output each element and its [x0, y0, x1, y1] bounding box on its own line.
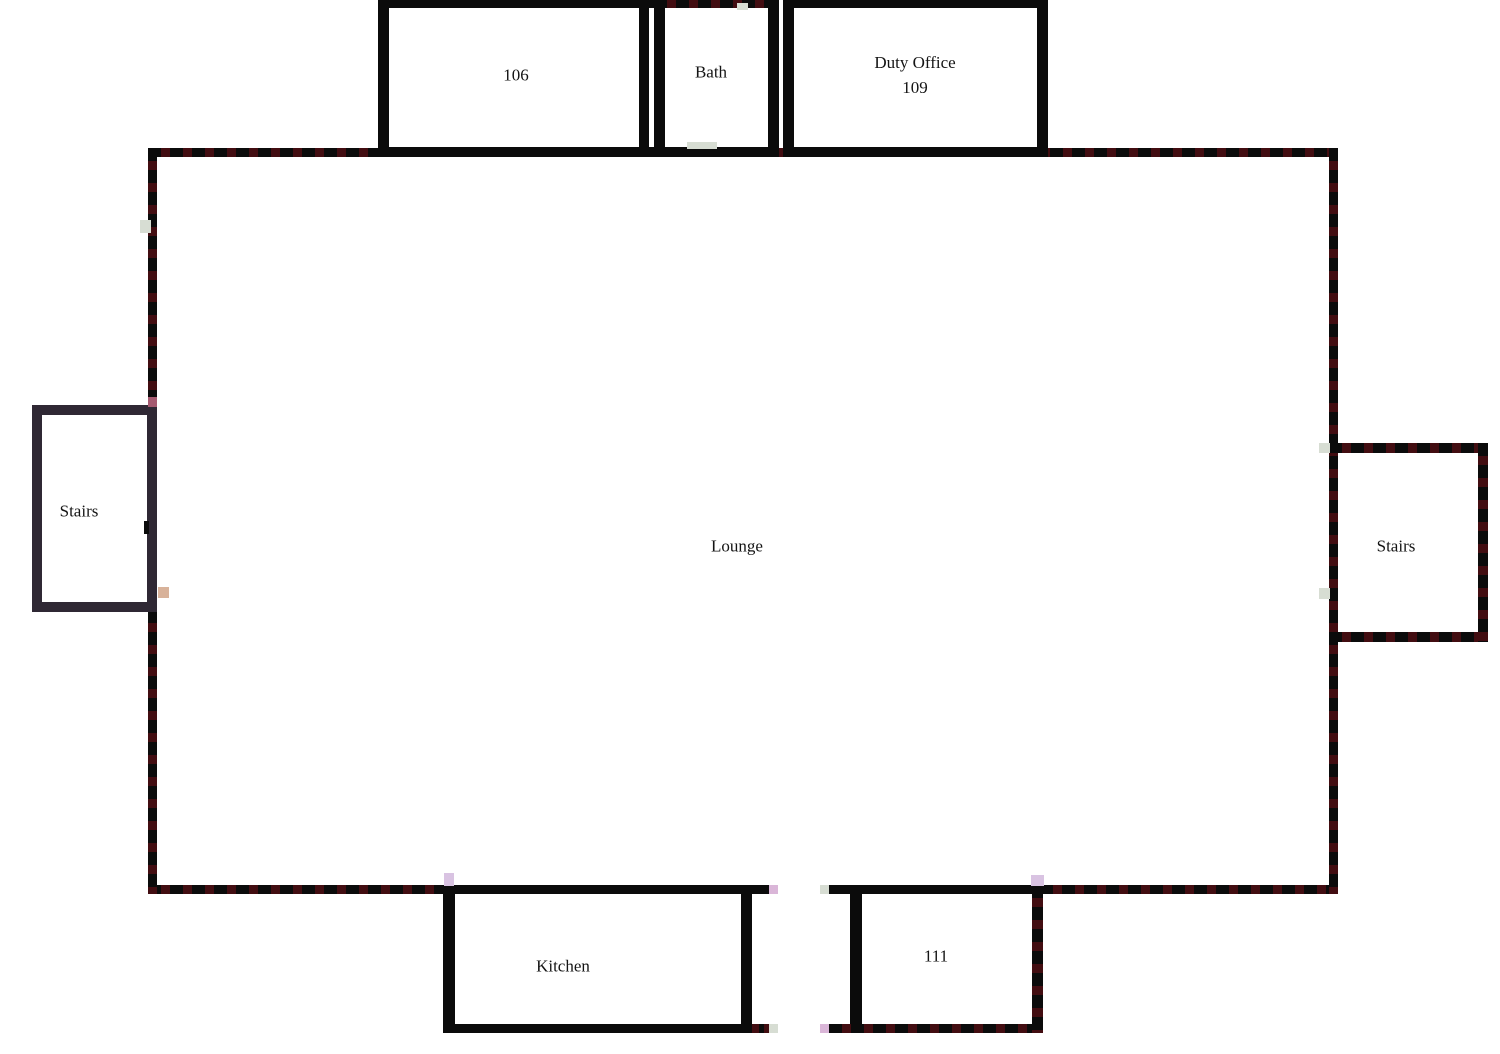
room-label-stairs-left: Stairs	[60, 499, 99, 524]
door-marker-111-top-right	[1031, 875, 1044, 886]
door-marker-stairs-right-top	[1319, 443, 1330, 453]
wall-stairs-right-top	[1329, 443, 1488, 453]
wall-kitchen-left	[443, 885, 455, 1033]
wall-106-bottom	[378, 147, 655, 157]
room-label-duty-office: Duty Office 109	[874, 50, 955, 100]
wall-stairs-left-right	[147, 405, 157, 612]
room-label-lounge: Lounge	[711, 534, 763, 559]
door-marker-stairs-right-bottom	[1319, 588, 1330, 599]
room-label-duty-office-name: Duty Office	[874, 50, 955, 75]
door-marker-stairs-left-bottom	[158, 587, 169, 598]
wall-kitchen-top	[443, 885, 769, 894]
wall-stairs-left-top	[32, 405, 157, 415]
wall-duty-office-top	[783, 0, 1048, 8]
wall-lounge-right	[1329, 148, 1338, 894]
room-label-stairs-right: Stairs	[1377, 534, 1416, 559]
wall-kitchen-bottom	[443, 1024, 752, 1033]
wall-kitchen-right	[741, 885, 752, 1033]
wall-111-right	[1032, 885, 1043, 1033]
wall-bath-left	[654, 0, 665, 157]
wall-106-left	[378, 0, 389, 157]
wall-stairs-right-right	[1478, 443, 1488, 642]
wall-duty-office-right	[1037, 0, 1048, 157]
wall-stairs-left-bottom	[32, 602, 157, 612]
wall-111-bottom	[829, 1024, 1043, 1033]
wall-bath-top	[654, 0, 779, 8]
floor-plan: Lounge 106 Bath Duty Office 109	[0, 0, 1500, 1054]
wall-duty-office-left	[783, 0, 794, 157]
wall-106-top	[378, 0, 655, 8]
door-marker-kitchen-bottom-right	[769, 1024, 778, 1033]
wall-kitchen-bottom-extension	[752, 1024, 769, 1033]
wall-111-left	[850, 885, 862, 1033]
room-label-bath: Bath	[695, 60, 727, 85]
wall-bath-right	[768, 0, 779, 157]
door-marker-kitchen-top-left	[444, 873, 454, 886]
door-marker-kitchen-top-right	[769, 885, 778, 894]
door-marker-bath-bottom	[687, 142, 717, 149]
wall-106-right	[639, 0, 649, 157]
door-marker-lounge-left-wall	[140, 220, 151, 233]
wall-stairs-left-left	[32, 405, 42, 612]
wall-stairs-right-bottom	[1329, 632, 1488, 642]
room-label-106: 106	[503, 63, 529, 88]
door-marker-bath-top	[737, 3, 748, 10]
wall-duty-office-bottom	[783, 147, 1048, 157]
room-label-111: 111	[924, 944, 948, 969]
room-label-duty-office-number: 109	[874, 75, 955, 100]
door-marker-stairs-left-top	[148, 397, 157, 407]
door-marker-111-top-left	[820, 885, 829, 894]
door-tick-stairs-left	[144, 521, 149, 534]
room-label-kitchen: Kitchen	[536, 954, 590, 979]
door-marker-111-bottom-left	[820, 1024, 829, 1033]
